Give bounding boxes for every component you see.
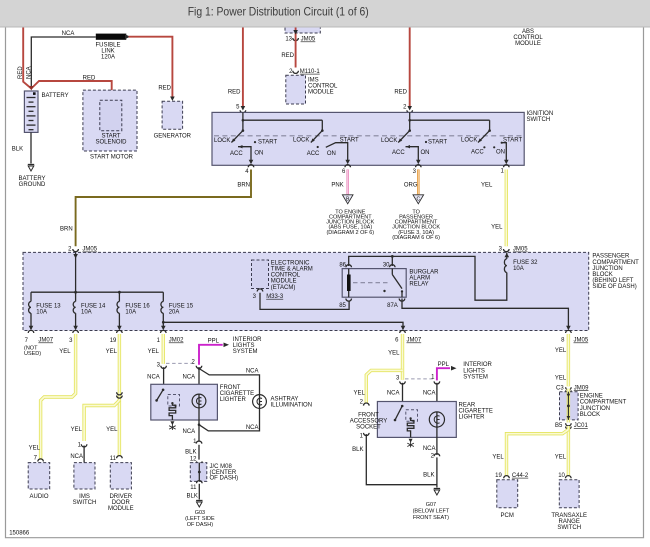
svg-text:NCA: NCA xyxy=(26,66,32,79)
svg-text:USED): USED) xyxy=(24,351,41,357)
svg-text:(DIAGRAM 6 OF 6): (DIAGRAM 6 OF 6) xyxy=(392,235,440,241)
svg-text:13: 13 xyxy=(285,37,292,43)
svg-text:10A: 10A xyxy=(36,310,47,316)
svg-text:JC01: JC01 xyxy=(574,423,589,429)
svg-text:M110-1: M110-1 xyxy=(300,69,321,75)
svg-text:LOCK: LOCK xyxy=(293,138,309,144)
svg-text:YEL: YEL xyxy=(106,349,118,355)
svg-text:10A: 10A xyxy=(81,310,92,316)
svg-text:PPL: PPL xyxy=(208,339,220,345)
svg-text:120A: 120A xyxy=(101,54,115,60)
svg-text:AUDIO: AUDIO xyxy=(29,494,48,500)
svg-text:SOLENOID: SOLENOID xyxy=(95,139,127,145)
svg-text:BRN: BRN xyxy=(60,227,73,233)
svg-text:START: START xyxy=(258,139,277,145)
svg-text:OF DASH): OF DASH) xyxy=(187,522,213,528)
svg-text:YEL: YEL xyxy=(388,350,400,356)
svg-text:RANGE: RANGE xyxy=(559,519,580,525)
svg-text:SWITCH: SWITCH xyxy=(527,117,551,123)
svg-text:NCA: NCA xyxy=(423,391,436,397)
svg-text:(DIAGRAM 2 OF 6): (DIAGRAM 2 OF 6) xyxy=(326,230,374,236)
svg-text:BLOCK: BLOCK xyxy=(580,412,600,418)
svg-text:YEL: YEL xyxy=(71,427,83,433)
svg-text:NCA: NCA xyxy=(70,454,83,460)
svg-text:YEL: YEL xyxy=(492,454,504,460)
svg-text:LOCK: LOCK xyxy=(381,138,397,144)
svg-text:ENGINE: ENGINE xyxy=(580,394,603,400)
svg-text:SYSTEM: SYSTEM xyxy=(463,375,488,381)
svg-text:19: 19 xyxy=(495,473,502,479)
svg-text:TIME & ALARM: TIME & ALARM xyxy=(271,267,313,273)
svg-text:GENERATOR: GENERATOR xyxy=(154,134,192,140)
svg-text:ILLUMINATION: ILLUMINATION xyxy=(271,403,313,409)
svg-text:JM05: JM05 xyxy=(574,338,589,344)
svg-text:BRN: BRN xyxy=(237,182,250,188)
svg-text:(BELOW LEFT: (BELOW LEFT xyxy=(413,508,450,514)
svg-text:C44-2: C44-2 xyxy=(512,473,529,479)
svg-text:NCA: NCA xyxy=(183,374,196,380)
svg-text:87A: 87A xyxy=(387,303,398,309)
svg-text:YEL: YEL xyxy=(106,427,118,433)
svg-text:LIGHTER: LIGHTER xyxy=(459,414,486,420)
svg-text:START MOTOR: START MOTOR xyxy=(90,155,134,161)
svg-text:START: START xyxy=(428,139,447,145)
svg-text:B5: B5 xyxy=(555,423,563,429)
svg-text:JM07: JM07 xyxy=(407,338,422,344)
svg-text:RED: RED xyxy=(228,89,241,95)
svg-text:JM02: JM02 xyxy=(169,338,184,344)
svg-text:OF DASH): OF DASH) xyxy=(210,476,239,482)
svg-text:NCA: NCA xyxy=(183,429,196,435)
svg-text:COMPARTMENT: COMPARTMENT xyxy=(592,260,639,266)
svg-text:BLK: BLK xyxy=(185,449,196,455)
svg-text:JM09: JM09 xyxy=(574,385,589,391)
svg-text:11: 11 xyxy=(190,485,197,491)
svg-text:FRONT SEAT): FRONT SEAT) xyxy=(413,515,449,521)
svg-text:LIGHTS: LIGHTS xyxy=(463,368,485,374)
svg-text:LOCK: LOCK xyxy=(461,138,477,144)
svg-text:BLK: BLK xyxy=(423,473,434,479)
svg-text:11: 11 xyxy=(110,456,117,462)
svg-text:SOCKET: SOCKET xyxy=(356,425,381,431)
svg-text:85: 85 xyxy=(339,303,346,309)
svg-text:C: C xyxy=(416,196,420,202)
svg-text:RELAY: RELAY xyxy=(409,282,428,288)
svg-text:YEL: YEL xyxy=(481,182,493,188)
svg-text:ON: ON xyxy=(421,150,430,156)
svg-text:BLK: BLK xyxy=(12,147,23,153)
svg-text:YEL: YEL xyxy=(59,349,71,355)
svg-text:M33-3: M33-3 xyxy=(266,294,284,300)
svg-text:ACC: ACC xyxy=(471,149,484,155)
svg-text:ACC: ACC xyxy=(307,151,320,157)
svg-text:C3: C3 xyxy=(556,385,564,391)
svg-text:10A: 10A xyxy=(513,266,524,272)
svg-text:Fig 1: Power Distribution Circ: Fig 1: Power Distribution Circuit (1 of … xyxy=(188,4,369,18)
svg-text:ELECTRONIC: ELECTRONIC xyxy=(271,260,310,266)
svg-text:PPL: PPL xyxy=(438,362,450,368)
svg-text:JM05: JM05 xyxy=(513,247,528,253)
svg-text:RED: RED xyxy=(281,53,294,59)
svg-text:ON: ON xyxy=(327,151,336,157)
svg-text:YEL: YEL xyxy=(555,375,567,381)
svg-text:JUNCTION: JUNCTION xyxy=(580,406,610,412)
svg-text:BLOCK: BLOCK xyxy=(592,272,612,278)
svg-text:LOCK: LOCK xyxy=(214,138,230,144)
svg-text:ON: ON xyxy=(254,150,263,156)
svg-text:JM05: JM05 xyxy=(301,37,316,43)
svg-text:CONTROL: CONTROL xyxy=(271,273,301,279)
svg-text:G07: G07 xyxy=(426,502,436,508)
svg-text:10: 10 xyxy=(558,473,565,479)
svg-text:TRANSAXLE: TRANSAXLE xyxy=(551,513,587,519)
svg-text:RED: RED xyxy=(394,89,407,95)
svg-text:(ETACM): (ETACM) xyxy=(271,285,296,291)
svg-text:MODULE: MODULE xyxy=(271,279,297,285)
svg-text:RED: RED xyxy=(83,75,96,81)
svg-text:BLK: BLK xyxy=(187,494,198,500)
svg-text:COMPARTMENT: COMPARTMENT xyxy=(580,400,627,406)
svg-text:ORG: ORG xyxy=(404,182,418,188)
svg-text:NCA: NCA xyxy=(387,391,400,397)
svg-text:NCA: NCA xyxy=(423,446,436,452)
svg-text:19: 19 xyxy=(110,338,117,344)
svg-text:JM07: JM07 xyxy=(38,338,53,344)
svg-text:YEL: YEL xyxy=(491,224,503,230)
svg-text:SWITCH: SWITCH xyxy=(73,500,97,506)
svg-text:20A: 20A xyxy=(169,310,180,316)
svg-text:PCM: PCM xyxy=(501,513,514,519)
svg-text:BLK: BLK xyxy=(352,447,363,453)
svg-text:YEL: YEL xyxy=(29,445,41,451)
svg-text:ACC: ACC xyxy=(392,150,405,156)
svg-text:NCA: NCA xyxy=(62,31,75,37)
svg-text:YEL: YEL xyxy=(354,391,366,397)
svg-text:SYSTEM: SYSTEM xyxy=(233,349,258,355)
svg-text:LIGHTER: LIGHTER xyxy=(220,397,247,403)
svg-text:MODULE: MODULE xyxy=(308,90,334,96)
svg-text:PASSENGER: PASSENGER xyxy=(592,254,630,260)
svg-text:MODULE: MODULE xyxy=(515,41,541,47)
svg-text:MODULE: MODULE xyxy=(108,506,134,512)
svg-text:JUNCTION: JUNCTION xyxy=(592,266,622,272)
svg-text:SIDE OF DASH): SIDE OF DASH) xyxy=(592,284,636,290)
svg-text:30: 30 xyxy=(383,263,390,269)
svg-text:YEL: YEL xyxy=(555,348,567,354)
svg-text:INTERIOR: INTERIOR xyxy=(463,362,492,368)
svg-text:10A: 10A xyxy=(125,310,136,316)
svg-text:YEL: YEL xyxy=(555,454,567,460)
svg-text:ON: ON xyxy=(496,149,505,155)
svg-text:ACC: ACC xyxy=(230,151,243,157)
svg-text:(BEHIND LEFT: (BEHIND LEFT xyxy=(592,278,633,284)
svg-text:RED: RED xyxy=(18,66,24,79)
svg-text:YEL: YEL xyxy=(148,349,160,355)
svg-text:GROUND: GROUND xyxy=(19,182,46,188)
svg-text:150866: 150866 xyxy=(9,530,30,536)
svg-text:NCA: NCA xyxy=(246,369,259,375)
svg-text:86: 86 xyxy=(339,263,346,269)
svg-text:NCA: NCA xyxy=(246,425,259,431)
svg-text:BATTERY: BATTERY xyxy=(42,93,69,99)
svg-text:NCA: NCA xyxy=(147,374,160,380)
svg-text:RED: RED xyxy=(158,86,171,92)
svg-text:SWITCH: SWITCH xyxy=(557,525,581,531)
svg-text:JM05: JM05 xyxy=(82,247,97,253)
svg-text:PNK: PNK xyxy=(331,182,343,188)
